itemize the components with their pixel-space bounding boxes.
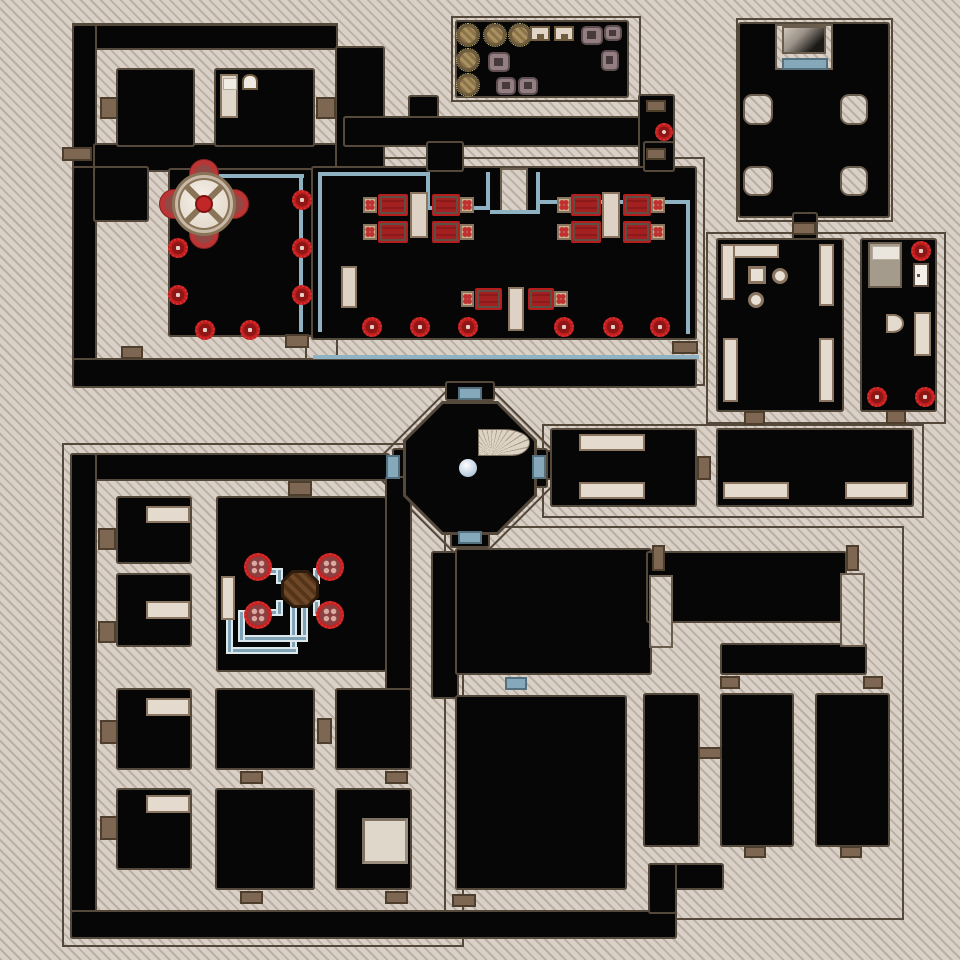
door-br-c1-south: [698, 747, 722, 759]
connector-tl-kitchen: [337, 48, 383, 170]
pillow: [651, 224, 665, 240]
crate: [530, 26, 550, 41]
gray-chair: [496, 77, 516, 95]
bench-bl-room3: [146, 698, 190, 716]
bench-counter-e2: [819, 338, 834, 402]
door-tl-room1-west: [100, 97, 118, 119]
blue-window-tr: [782, 58, 828, 70]
pew-bed: [571, 194, 601, 216]
floorplan-map[interactable]: [0, 0, 960, 960]
pew-bed: [432, 221, 460, 243]
br-room-c1: [645, 695, 698, 845]
door-kitchen-east-2: [646, 148, 666, 160]
door-mid-wall-3: [240, 891, 263, 904]
door-br-a-west: [652, 545, 665, 571]
blue-door-oct-west: [386, 455, 400, 479]
tr-pillar-sw: [743, 166, 773, 196]
bl-corridor-top: [72, 455, 388, 479]
door-counter-room-south: [744, 411, 765, 425]
pillow: [460, 197, 474, 213]
pew-bed: [623, 221, 651, 243]
pillow: [461, 291, 474, 307]
door-kitchen-east-1: [646, 100, 666, 112]
door-hall-southeast: [672, 341, 698, 354]
bench-table-room: [221, 576, 235, 620]
red-chair: [316, 553, 344, 581]
spiral-staircase: [478, 429, 530, 456]
gray-chair: [581, 26, 603, 45]
hall-north-gap-west: [428, 143, 462, 170]
pew-bed: [528, 288, 554, 310]
pillow: [363, 197, 377, 213]
candle: [292, 238, 312, 258]
pillow: [460, 224, 474, 240]
pillow: [557, 197, 571, 213]
pew-bed: [475, 288, 502, 310]
door-bl-room4: [100, 816, 118, 840]
door-mid-wall-4: [385, 891, 408, 904]
candle: [240, 320, 260, 340]
candle: [292, 190, 312, 210]
door-br-corr-east: [863, 676, 883, 689]
door-south-corridor-west: [121, 346, 143, 359]
pipe-chair-sw-v: [276, 600, 283, 616]
door-tl-exterior-west: [62, 147, 92, 161]
bench-east-corr-1b: [579, 482, 645, 499]
candle: [292, 285, 312, 305]
door-mid-wall-2: [385, 771, 408, 784]
door-br-a-east: [846, 545, 859, 571]
pew-stand-west: [410, 192, 428, 238]
pipe-long-inner-h: [238, 635, 308, 642]
pew-bed: [623, 194, 651, 216]
counter-top-v: [721, 244, 735, 300]
pillow: [651, 197, 665, 213]
bc-room-upper: [457, 550, 650, 673]
pew-bed: [432, 194, 460, 216]
br-room-c2: [722, 695, 792, 845]
br-divider-wall: [840, 573, 865, 647]
bench-bl-room1: [146, 506, 190, 523]
br-room-c3: [817, 695, 888, 845]
flower-table-center: [195, 195, 213, 213]
door-east-corridor-mid: [697, 456, 711, 480]
stairs-down-alcove: [782, 26, 826, 54]
blue-door-bc-room: [505, 677, 527, 690]
bench-bl-room2: [146, 601, 190, 619]
candle: [168, 238, 188, 258]
barrel: [457, 24, 479, 46]
door-br-bottom-2: [840, 846, 862, 858]
south-corridor: [74, 360, 695, 386]
mid-vert-corridor: [387, 478, 410, 690]
door-br-corr-west: [720, 676, 740, 689]
bc-room-big: [457, 697, 625, 888]
candle: [410, 317, 430, 337]
barrel: [509, 24, 531, 46]
br-exit-v: [650, 865, 675, 912]
candle: [168, 285, 188, 305]
pipe-long-outer-h: [226, 647, 298, 654]
center-vert-corridor: [433, 553, 457, 697]
tl-corridor-left-lower: [74, 168, 95, 363]
trim-hall-west: [318, 172, 322, 332]
pedestal: [362, 818, 408, 864]
barrel: [457, 49, 479, 71]
stand-hall-west-wall: [341, 266, 357, 308]
door-tl-room2-east: [316, 97, 336, 119]
gray-chair: [604, 25, 622, 41]
bench-counter-w: [723, 338, 738, 402]
bl-corridor-left: [72, 455, 95, 937]
kitchen-south-corridor: [345, 118, 660, 145]
bl-corridor-bottom: [72, 912, 675, 937]
door-mid-wall-1: [240, 771, 263, 784]
round-table: [772, 268, 788, 284]
basin: [242, 74, 258, 90]
bench-east-corr-1a: [579, 434, 645, 451]
door-mid-rooms-vertical: [317, 718, 332, 744]
crate: [554, 26, 574, 41]
candle: [195, 320, 215, 340]
tr-pillar-nw: [743, 94, 773, 125]
trim-hall-u3: [486, 172, 490, 210]
door-bl-room3: [100, 720, 118, 744]
door-church-south: [285, 334, 309, 348]
round-table: [748, 292, 764, 308]
bed-tl-room2: [220, 74, 238, 118]
pew-stand-center: [508, 287, 524, 331]
candle: [867, 387, 887, 407]
blue-door-oct-south: [458, 531, 482, 544]
hall-top-pillar: [500, 168, 528, 214]
candle: [915, 387, 935, 407]
candle: [554, 317, 574, 337]
orb: [459, 459, 477, 477]
door-table-room-north: [288, 481, 312, 496]
octagon-table: [284, 573, 316, 605]
white-door-cabinet: [913, 263, 929, 287]
square-table: [748, 266, 766, 284]
blue-door-oct-east: [532, 455, 546, 479]
door-tr-south: [792, 222, 816, 235]
trim-hall-pillar: [490, 210, 540, 214]
pillow: [554, 291, 568, 307]
pew-stand-east: [602, 192, 620, 238]
bench-bl-room4: [146, 795, 190, 813]
br-room-a: [648, 553, 845, 621]
mid-room-2: [337, 690, 410, 768]
blue-door-oct-north: [458, 387, 482, 400]
door-bl-room1: [98, 528, 116, 550]
red-chair: [244, 553, 272, 581]
candle: [603, 317, 623, 337]
trim-hall-east: [686, 200, 690, 334]
door-bc-big-room-south: [452, 894, 476, 907]
candle: [650, 317, 670, 337]
bench-east-corr-2b: [845, 482, 908, 499]
barrel: [457, 74, 479, 96]
tr-pillar-ne: [840, 94, 868, 125]
red-chair: [316, 601, 344, 629]
tl-corridor-top: [74, 26, 336, 48]
mid-room-1: [217, 690, 313, 768]
pew-bed: [571, 221, 601, 243]
gray-chair: [601, 50, 619, 71]
trim-hall-u4: [536, 172, 540, 214]
tl-stub-room: [95, 168, 147, 220]
tr-pillar-se: [840, 166, 868, 196]
pillow: [557, 224, 571, 240]
bc-divider-wall: [649, 575, 673, 648]
bench-east-corr-2a: [723, 482, 789, 499]
pew-bed: [378, 221, 408, 243]
red-chair: [244, 601, 272, 629]
trim-hall-top-west: [318, 172, 426, 176]
gray-chair: [488, 52, 510, 72]
pew-bed: [378, 194, 408, 216]
tl-room-1: [118, 70, 193, 145]
bench-bedroom: [914, 312, 931, 356]
br-corridor: [722, 645, 865, 673]
bench-counter-e1: [819, 244, 834, 306]
mid-room-3: [217, 790, 313, 888]
candle: [458, 317, 478, 337]
pillow: [363, 224, 377, 240]
candle: [655, 123, 673, 141]
candle: [911, 241, 931, 261]
bed-bedroom: [868, 242, 902, 288]
candle: [362, 317, 382, 337]
door-bedroom-south: [886, 410, 906, 424]
gray-chair: [518, 77, 538, 95]
barrel: [484, 24, 506, 46]
door-bl-room2: [98, 621, 116, 643]
door-br-bottom-1: [744, 846, 766, 858]
trim-south-corridor: [313, 355, 699, 359]
